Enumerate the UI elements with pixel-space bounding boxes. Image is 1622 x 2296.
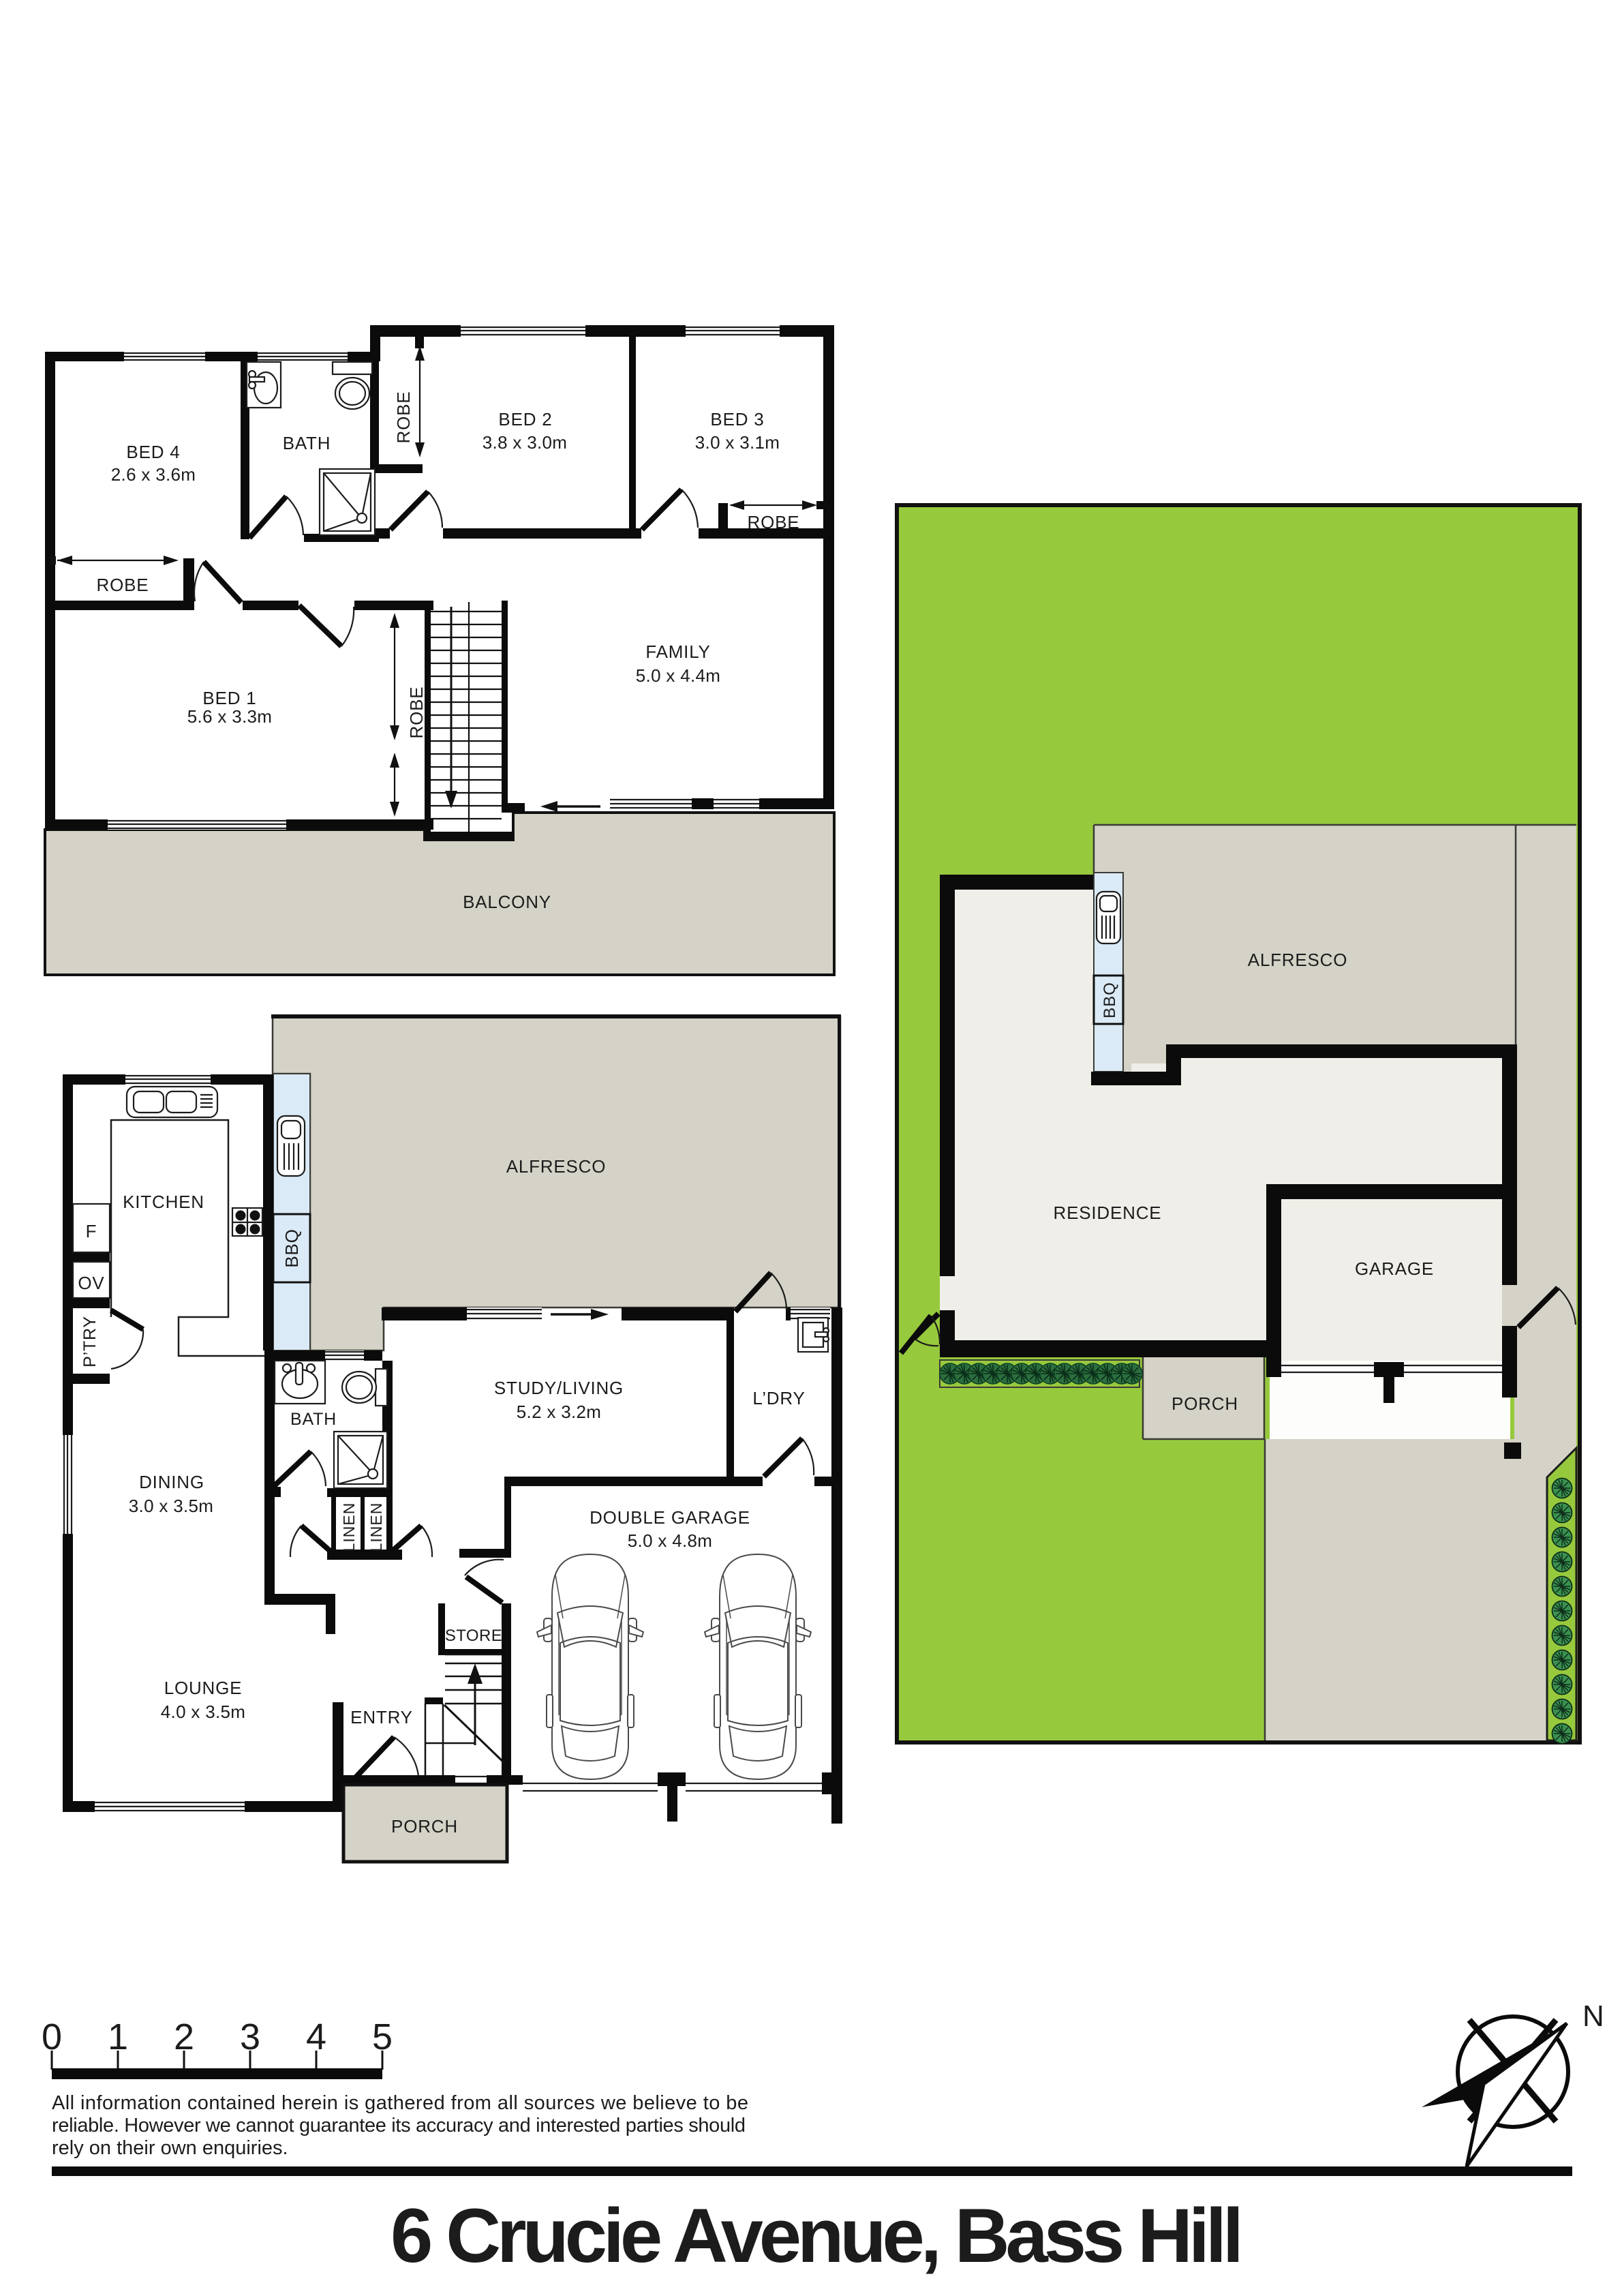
svg-text:5.6 x 3.3m: 5.6 x 3.3m — [187, 706, 272, 727]
svg-text:BBQ: BBQ — [281, 1228, 302, 1267]
svg-text:4.0 x 3.5m: 4.0 x 3.5m — [161, 1702, 245, 1722]
svg-text:P’TRY: P’TRY — [80, 1316, 100, 1368]
svg-text:STORE: STORE — [445, 1627, 502, 1645]
svg-text:PORCH: PORCH — [1172, 1393, 1238, 1414]
svg-text:BED 4: BED 4 — [126, 442, 180, 462]
svg-text:5.0 x 4.4m: 5.0 x 4.4m — [636, 665, 720, 686]
svg-text:BBQ: BBQ — [1101, 982, 1119, 1018]
svg-text:3.8 x 3.0m: 3.8 x 3.0m — [483, 432, 567, 453]
svg-text:RESIDENCE: RESIDENCE — [1054, 1203, 1162, 1223]
svg-text:LOUNGE: LOUNGE — [164, 1678, 243, 1698]
svg-text:6 Crucie Avenue, Bass Hill: 6 Crucie Avenue, Bass Hill — [391, 2193, 1244, 2278]
svg-text:All information contained here: All information contained herein is gath… — [52, 2092, 748, 2114]
svg-text:DINING: DINING — [139, 1472, 204, 1492]
svg-text:3.0 x 3.5m: 3.0 x 3.5m — [129, 1496, 213, 1516]
svg-text:BATH: BATH — [290, 1410, 337, 1429]
svg-text:ROBE: ROBE — [406, 686, 427, 739]
svg-text:5.2 x 3.2m: 5.2 x 3.2m — [517, 1402, 601, 1422]
svg-text:LINEN: LINEN — [367, 1502, 385, 1552]
svg-text:ROBE: ROBE — [748, 512, 800, 532]
svg-text:DOUBLE GARAGE: DOUBLE GARAGE — [590, 1507, 750, 1528]
svg-text:BED 1: BED 1 — [202, 688, 256, 708]
svg-text:ALFRESCO: ALFRESCO — [1248, 950, 1348, 970]
svg-text:L’DRY: L’DRY — [752, 1388, 805, 1408]
svg-text:ALFRESCO: ALFRESCO — [506, 1156, 607, 1177]
svg-text:5.0 x 4.8m: 5.0 x 4.8m — [628, 1530, 712, 1551]
svg-text:LINEN: LINEN — [340, 1502, 358, 1552]
svg-text:KITCHEN: KITCHEN — [123, 1192, 204, 1212]
svg-text:STUDY/LIVING: STUDY/LIVING — [494, 1378, 624, 1398]
svg-text:BED 2: BED 2 — [498, 409, 552, 429]
svg-text:3.0 x 3.1m: 3.0 x 3.1m — [695, 432, 780, 453]
svg-text:reliable. However we cannot gu: reliable. However we cannot guarantee it… — [52, 2115, 746, 2136]
svg-text:F: F — [86, 1221, 97, 1241]
svg-text:BED 3: BED 3 — [710, 409, 764, 429]
svg-text:rely on their own enquiries.: rely on their own enquiries. — [52, 2137, 288, 2159]
svg-text:BATH: BATH — [283, 433, 331, 453]
svg-text:BALCONY: BALCONY — [463, 892, 551, 912]
svg-text:GARAGE: GARAGE — [1355, 1258, 1434, 1279]
svg-text:N: N — [1582, 1999, 1604, 2033]
svg-text:ROBE: ROBE — [393, 391, 414, 444]
svg-text:2.6 x 3.6m: 2.6 x 3.6m — [111, 464, 196, 485]
svg-text:OV: OV — [78, 1273, 104, 1293]
svg-text:PORCH: PORCH — [391, 1816, 458, 1837]
svg-text:FAMILY: FAMILY — [645, 641, 710, 662]
svg-text:ENTRY: ENTRY — [350, 1707, 413, 1727]
svg-text:ROBE: ROBE — [97, 575, 149, 595]
